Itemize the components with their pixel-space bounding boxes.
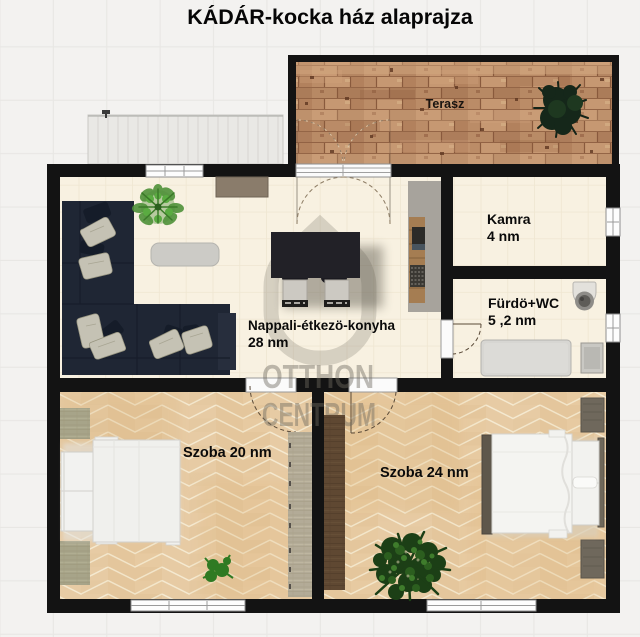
svg-text:OTTHON: OTTHON [262,358,374,395]
svg-text:Fürdö+WC: Fürdö+WC [488,295,559,311]
svg-text:4 nm: 4 nm [487,228,520,244]
svg-text:Kamra: Kamra [487,211,531,227]
svg-text:Szoba 20 nm: Szoba 20 nm [183,445,272,461]
svg-text:KÁDÁR-kocka ház alaprajza: KÁDÁR-kocka ház alaprajza [187,4,474,29]
svg-text:Nappali-étkezö-konyha: Nappali-étkezö-konyha [248,318,396,333]
svg-text:Terasz: Terasz [426,97,465,111]
svg-text:Szoba 24 nm: Szoba 24 nm [380,465,469,481]
svg-text:28 nm: 28 nm [248,334,288,350]
svg-text:CENTRUM: CENTRUM [262,396,376,433]
svg-text:5 ,2 nm: 5 ,2 nm [488,312,536,328]
